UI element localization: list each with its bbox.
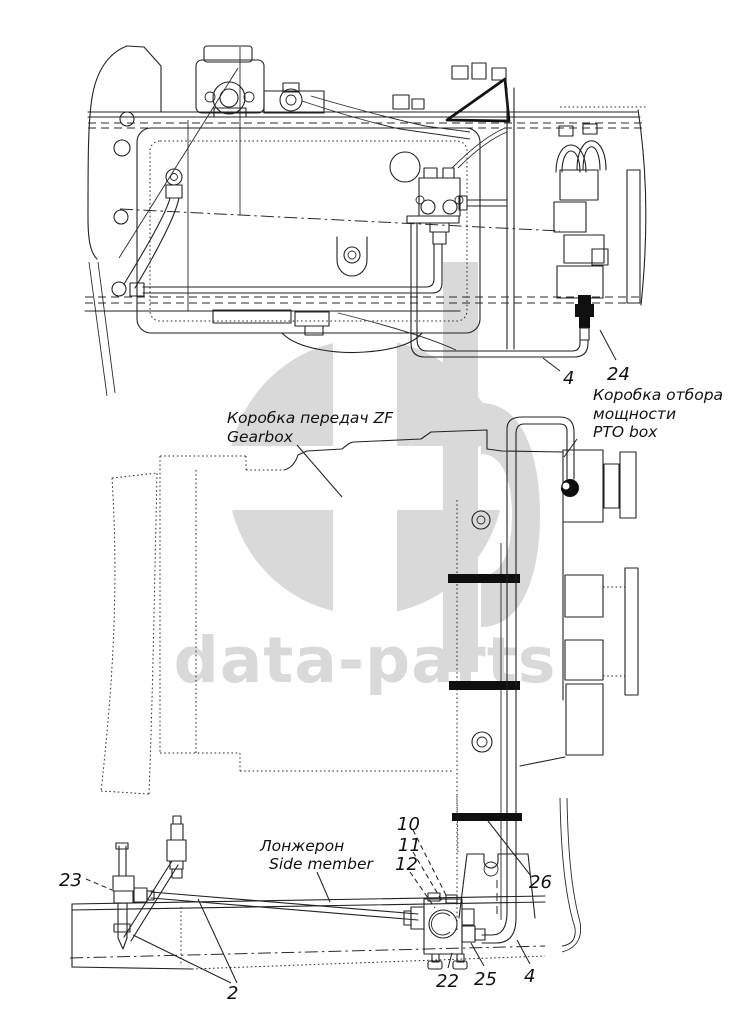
watermark-logo: data-parts [174, 262, 557, 697]
pto-caption-en: PTO box [593, 423, 658, 441]
callout-12: 12 [395, 854, 418, 875]
side-member-caption-en: Side member [269, 855, 375, 873]
gearbox-caption-ru: Коробка передач ZF [227, 409, 394, 427]
technical-diagram: data-parts [0, 0, 747, 1034]
callout-26: 26 [529, 872, 552, 893]
callout-23: 23 [59, 870, 82, 891]
side-member-caption-ru: Лонжерон [259, 837, 344, 855]
callout-24: 24 [607, 364, 630, 385]
pto-caption-ru-1: Коробка отбора [593, 386, 723, 404]
gearbox-caption-en: Gearbox [227, 428, 294, 446]
callout-11: 11 [398, 835, 421, 856]
callout-10: 10 [397, 814, 420, 835]
parts-diagram-page: data-parts [0, 0, 747, 1034]
callout-22: 22 [436, 971, 459, 992]
callout-25: 25 [474, 969, 497, 990]
callout-4-top: 4 [563, 368, 574, 389]
pto-caption-ru-2: мощности [593, 405, 676, 423]
callout-2: 2 [227, 983, 238, 1004]
callout-4-bottom: 4 [524, 966, 535, 987]
side-member-view-bottom [70, 796, 581, 969]
